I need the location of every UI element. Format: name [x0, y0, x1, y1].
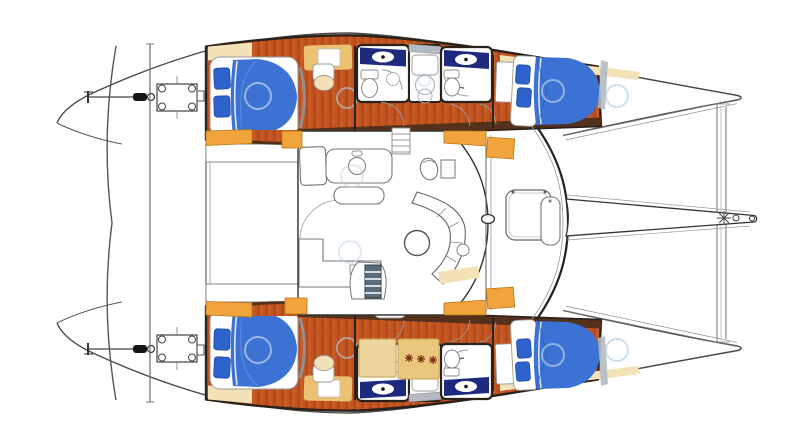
- hatch-hinge: [512, 191, 515, 194]
- cockpit: [206, 130, 298, 318]
- hatch-hinge: [544, 191, 547, 194]
- foredeck-locker-cabinet-top: [486, 137, 514, 159]
- side-deck-orange-bottom: [206, 302, 252, 318]
- companionway-starboard: [350, 262, 386, 299]
- cockpit-bench-aft: [206, 284, 298, 302]
- salon-corner-cabinet-br: [444, 300, 486, 315]
- burner-mark: [417, 355, 425, 363]
- anchor-locker: [541, 197, 560, 245]
- nav-desk: [441, 160, 455, 178]
- salon: [298, 128, 488, 315]
- salon-door-handle: [482, 215, 495, 224]
- port-hull: [57, 33, 741, 144]
- foredeck-locker-cabinet-bottom: [486, 287, 514, 309]
- burner-mark: [405, 354, 413, 362]
- salon-corner-cabinet-tr: [444, 131, 486, 146]
- cockpit-floor: [206, 144, 298, 302]
- seagull-striker: [717, 211, 731, 225]
- stairs-up-port: [392, 128, 410, 154]
- salon-table: [405, 231, 430, 256]
- side-deck-orange-top: [206, 130, 252, 146]
- companionway-port: [392, 128, 410, 154]
- catamaran-floorplan: [0, 0, 800, 446]
- burner-mark: [429, 356, 437, 364]
- bowsprit-tip-fitting: [750, 216, 755, 221]
- dresser-panel: [359, 339, 396, 377]
- anchor-locker-latch: [549, 200, 552, 203]
- salon-corner-cabinet-tl: [282, 131, 302, 148]
- salon-corner-cabinet-bl: [285, 298, 307, 314]
- galley-island: [334, 187, 384, 204]
- fridge-unit: [299, 147, 326, 186]
- trampoline-assembly: [566, 104, 757, 342]
- side-table: [457, 244, 469, 256]
- floorplan-canvas: [0, 0, 800, 446]
- bridle-ring: [733, 215, 739, 221]
